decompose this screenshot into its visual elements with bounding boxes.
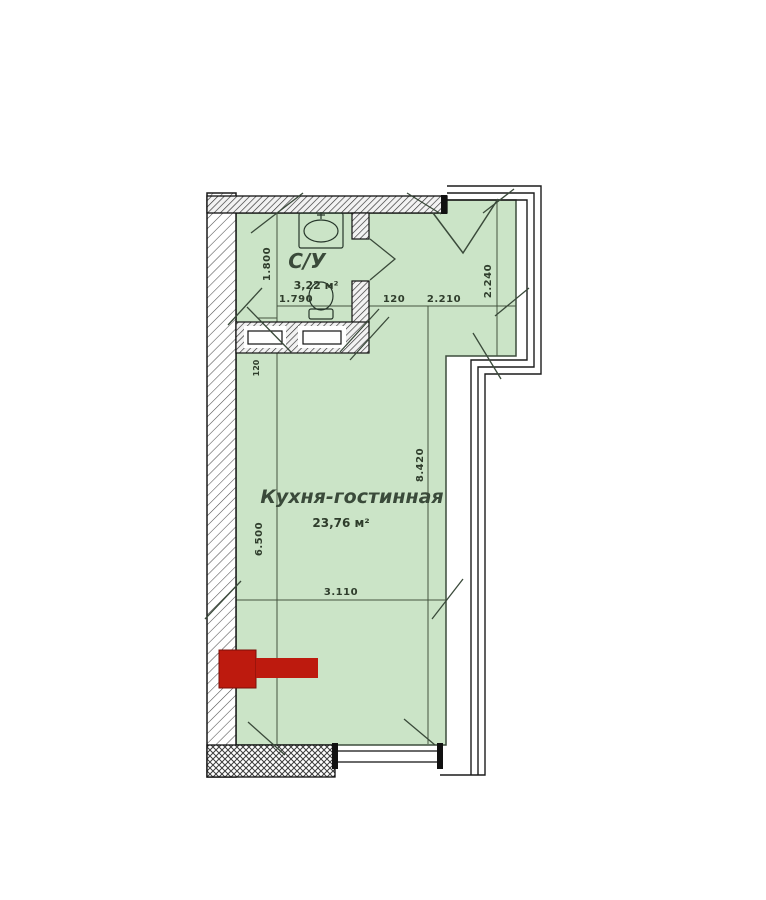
floorplan-drawing: С/У 3,22 м² Кухня-гостинная 23,76 м² 1.8… xyxy=(0,0,766,900)
bath-wall-upper xyxy=(352,213,369,239)
top-wall xyxy=(207,196,447,213)
floorplan-canvas: С/У 3,22 м² Кухня-гостинная 23,76 м² 1.8… xyxy=(0,0,766,900)
bottom-wall xyxy=(207,745,335,777)
dim-entry-width: 2.210 xyxy=(427,294,461,305)
dim-bath-width: 1.790 xyxy=(279,294,313,305)
dim-room-left-height: 6.500 xyxy=(254,522,265,556)
left-wall xyxy=(207,193,236,777)
bath-wall-lower xyxy=(352,281,369,323)
dim-wall-thickness: 120 xyxy=(252,359,261,376)
dim-entry-height: 2.240 xyxy=(483,264,494,298)
top-wall-end-cap xyxy=(441,195,447,214)
door-leaf-2 xyxy=(303,331,341,344)
window xyxy=(332,743,443,769)
dim-entry-offset: 120 xyxy=(383,294,405,305)
bathroom-name: С/У xyxy=(288,249,327,273)
dim-room-width: 3.110 xyxy=(324,587,358,598)
bathroom-area: 3,22 м² xyxy=(294,279,339,292)
dim-room-height: 8.420 xyxy=(415,448,426,482)
dim-bath-height: 1.800 xyxy=(262,247,273,281)
main-room-name: Кухня-гостинная xyxy=(260,486,443,508)
main-room-area: 23,76 м² xyxy=(312,516,369,530)
